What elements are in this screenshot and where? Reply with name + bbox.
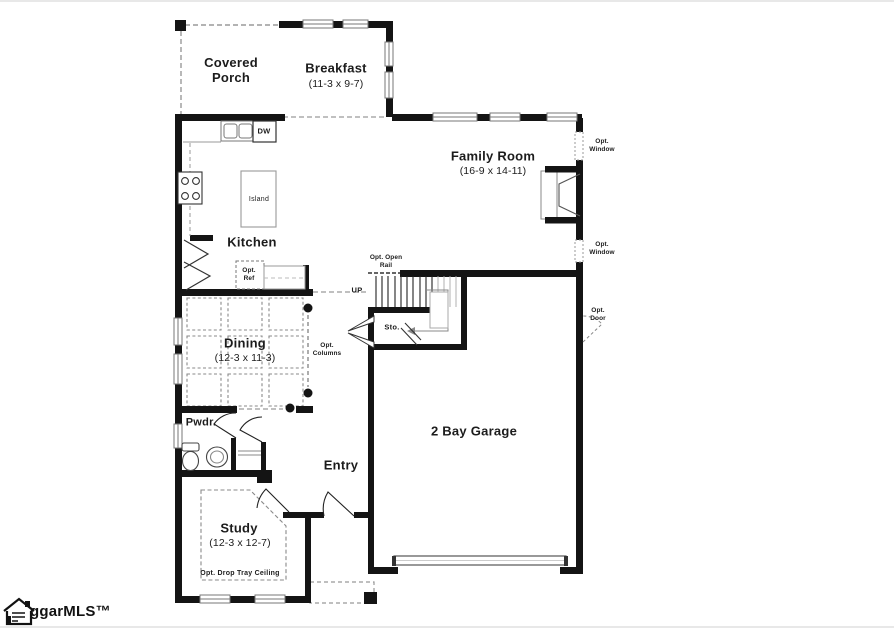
room-label-dining: Dining (224, 337, 266, 352)
floor-plan: Covered Porch Breakfast (11-3 x 9-7) Fam… (0, 0, 894, 628)
kitchen-sink-icon (221, 121, 254, 141)
room-label-entry: Entry (324, 459, 358, 474)
opt-door-label: Opt. Door (586, 307, 610, 323)
dining-opt-columns (286, 304, 313, 413)
dishwasher-label: DW (258, 128, 271, 137)
opt-window-label-2: Opt. Window (585, 241, 619, 257)
room-label-storage: Sto. (384, 324, 399, 333)
closet-shelves (238, 451, 261, 455)
fireplace-icon (541, 166, 582, 224)
range-icon (178, 172, 202, 204)
room-dims-family-room: (16-9 x 14-11) (460, 165, 527, 177)
top-edge (0, 0, 894, 2)
powder-sink-icon (207, 447, 228, 467)
toilet-icon (182, 443, 199, 471)
room-label-garage: 2 Bay Garage (431, 425, 517, 440)
front-door (323, 492, 354, 516)
room-dims-dining: (12-3 x 11-3) (215, 352, 276, 364)
opt-ref-label: Opt. Ref (238, 267, 260, 283)
room-label-family-room: Family Room (451, 150, 535, 165)
ref-counter (264, 266, 305, 289)
powder-door (214, 413, 236, 438)
room-label-covered-porch: Covered Porch (188, 56, 274, 86)
room-label-island: Island (249, 196, 269, 204)
room-label-kitchen: Kitchen (227, 236, 276, 251)
water-heater-icon (430, 292, 448, 328)
opt-columns-label: Opt. Columns (310, 342, 344, 358)
garage-door-icon (392, 556, 568, 566)
study-ceiling-note: Opt. Drop Tray Ceiling (200, 570, 279, 578)
stairs-up-label: UP (352, 287, 363, 296)
room-dims-study: (12-3 x 12-7) (209, 537, 270, 549)
room-label-breakfast: Breakfast (305, 62, 367, 77)
mls-logo-text: ggarMLS™ (30, 603, 111, 620)
room-label-powder: Pwdr. (186, 417, 217, 430)
opt-open-rail-label: Opt. Open Rail (364, 254, 408, 270)
opt-window-label-1: Opt. Window (585, 138, 619, 154)
room-label-study: Study (220, 522, 257, 537)
storage-door (401, 323, 421, 345)
study-door (257, 489, 289, 512)
floor-plan-drawing (0, 0, 894, 628)
front-stoop (310, 582, 377, 604)
closet-door (240, 417, 262, 442)
pantry-bifold-doors (184, 240, 210, 290)
room-dims-breakfast: (11-3 x 9-7) (309, 78, 364, 90)
